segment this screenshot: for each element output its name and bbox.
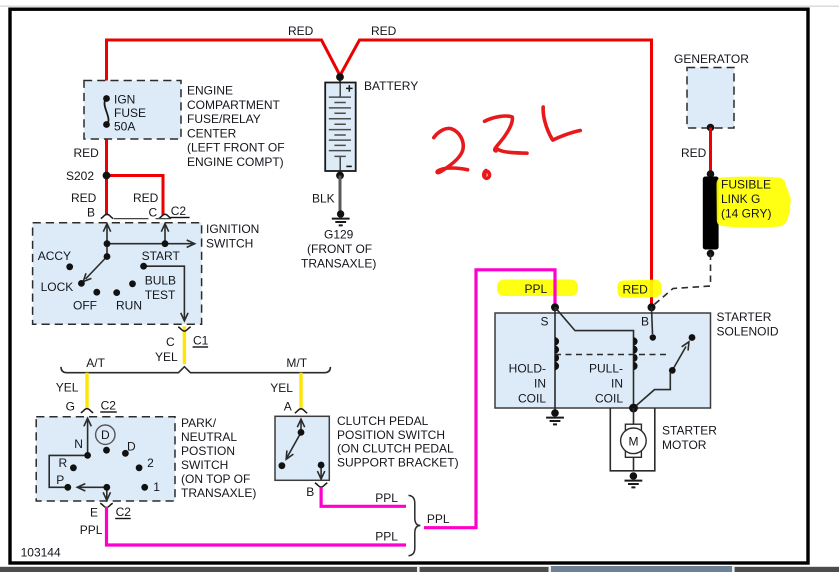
- svg-text:P: P: [56, 473, 64, 487]
- svg-text:SUPPORT BRACKET): SUPPORT BRACKET): [337, 455, 459, 469]
- svg-text:CLUTCH PEDAL: CLUTCH PEDAL: [337, 414, 429, 428]
- svg-text:1: 1: [153, 480, 160, 494]
- svg-text:BLK: BLK: [312, 192, 335, 206]
- svg-text:LOCK: LOCK: [41, 280, 74, 294]
- svg-text:S202: S202: [66, 169, 94, 183]
- svg-text:SWITCH: SWITCH: [181, 458, 228, 472]
- svg-text:(14 GRY): (14 GRY): [721, 207, 771, 221]
- svg-text:STARTER: STARTER: [717, 310, 772, 324]
- svg-text:FUSE/RELAY: FUSE/RELAY: [187, 112, 261, 126]
- svg-text:RUN: RUN: [116, 298, 142, 312]
- svg-text:RED: RED: [623, 283, 649, 297]
- svg-text:M/T: M/T: [286, 356, 307, 370]
- svg-text:C2: C2: [101, 399, 117, 413]
- svg-text:PULL-: PULL-: [589, 362, 623, 376]
- svg-text:SOLENOID: SOLENOID: [717, 324, 779, 338]
- svg-text:BATTERY: BATTERY: [364, 79, 418, 93]
- svg-text:POSITION SWITCH: POSITION SWITCH: [337, 428, 445, 442]
- svg-text:ENGINE: ENGINE: [187, 84, 233, 98]
- svg-text:(LEFT FRONT OF: (LEFT FRONT OF: [187, 141, 285, 155]
- svg-text:BULB: BULB: [145, 274, 176, 288]
- svg-text:TRANSAXLE): TRANSAXLE): [181, 486, 256, 500]
- svg-text:ACCY: ACCY: [38, 249, 71, 263]
- svg-text:PARK/: PARK/: [181, 416, 217, 430]
- svg-text:(ON TOP OF: (ON TOP OF: [181, 472, 250, 486]
- svg-text:S: S: [541, 315, 549, 329]
- svg-text:SWITCH: SWITCH: [206, 236, 253, 250]
- svg-text:NEUTRAL: NEUTRAL: [181, 430, 237, 444]
- svg-text:N: N: [74, 437, 83, 451]
- svg-text:YEL: YEL: [155, 350, 178, 364]
- svg-text:COIL: COIL: [595, 392, 623, 406]
- svg-text:A/T: A/T: [86, 356, 105, 370]
- svg-text:PPL: PPL: [375, 491, 398, 505]
- svg-text:POSTION: POSTION: [181, 444, 235, 458]
- svg-text:C2: C2: [116, 505, 132, 519]
- svg-text:(FRONT OF: (FRONT OF: [307, 242, 372, 256]
- svg-text:E: E: [90, 505, 98, 519]
- svg-text:RED: RED: [133, 191, 159, 205]
- svg-text:PPL: PPL: [525, 282, 548, 296]
- svg-text:RED: RED: [288, 24, 314, 38]
- svg-text:C1: C1: [193, 334, 209, 348]
- svg-text:RED: RED: [74, 146, 100, 160]
- svg-text:RED: RED: [71, 191, 97, 205]
- svg-text:STARTER: STARTER: [662, 424, 717, 438]
- svg-text:MOTOR: MOTOR: [662, 438, 707, 452]
- svg-text:RED: RED: [371, 24, 397, 38]
- svg-text:RED: RED: [681, 146, 707, 160]
- svg-text:FUSIBLE: FUSIBLE: [721, 178, 771, 192]
- svg-text:C2: C2: [171, 204, 187, 218]
- svg-text:LINK G: LINK G: [721, 192, 760, 206]
- svg-text:PPL: PPL: [427, 512, 450, 526]
- svg-text:50A: 50A: [114, 120, 135, 134]
- svg-text:D: D: [101, 428, 110, 442]
- svg-text:IGNITION: IGNITION: [206, 222, 259, 236]
- svg-text:START: START: [142, 249, 181, 263]
- svg-text:PPL: PPL: [375, 530, 398, 544]
- svg-text:R: R: [59, 456, 68, 470]
- svg-text:YEL: YEL: [56, 381, 79, 395]
- svg-text:TRANSAXLE): TRANSAXLE): [301, 257, 376, 271]
- svg-text:C: C: [166, 335, 175, 349]
- svg-text:IN: IN: [534, 377, 546, 391]
- svg-text:COMPARTMENT: COMPARTMENT: [187, 98, 281, 112]
- svg-text:D: D: [127, 440, 136, 454]
- svg-text:2: 2: [147, 456, 154, 470]
- svg-text:103144: 103144: [21, 546, 61, 560]
- svg-text:YEL: YEL: [270, 381, 293, 395]
- svg-text:OFF: OFF: [73, 298, 97, 312]
- svg-text:IN: IN: [611, 377, 623, 391]
- svg-text:IGN: IGN: [114, 93, 135, 107]
- svg-text:A: A: [284, 399, 292, 413]
- svg-text:CENTER: CENTER: [187, 126, 237, 140]
- svg-text:M: M: [629, 434, 639, 448]
- svg-text:B: B: [87, 206, 95, 220]
- svg-text:FUSE: FUSE: [114, 106, 146, 120]
- svg-text:C: C: [149, 206, 158, 220]
- svg-text:GENERATOR: GENERATOR: [674, 52, 749, 66]
- svg-text:HOLD-: HOLD-: [509, 362, 546, 376]
- svg-text:TEST: TEST: [145, 288, 176, 302]
- svg-text:G: G: [66, 400, 75, 414]
- svg-text:(ON CLUTCH PEDAL: (ON CLUTCH PEDAL: [337, 442, 454, 456]
- svg-text:B: B: [306, 485, 314, 499]
- svg-text:COIL: COIL: [518, 392, 546, 406]
- svg-text:PPL: PPL: [80, 523, 103, 537]
- svg-text:B: B: [641, 315, 649, 329]
- svg-text:ENGINE COMPT): ENGINE COMPT): [187, 155, 284, 169]
- svg-text:G129: G129: [324, 228, 354, 242]
